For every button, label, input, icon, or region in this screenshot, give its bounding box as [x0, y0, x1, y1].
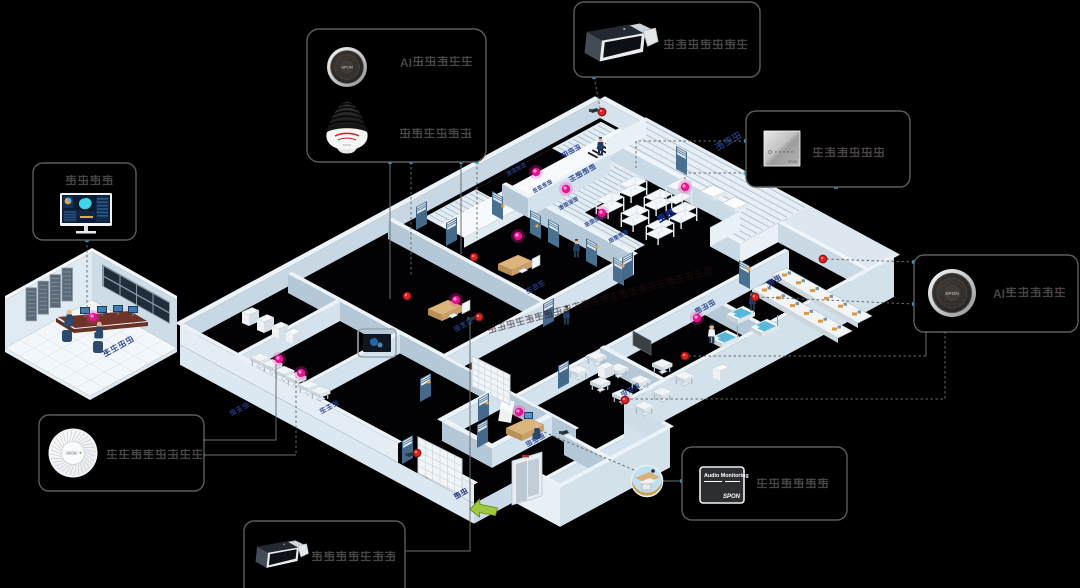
svg-text:Audio Monitoring: Audio Monitoring — [704, 473, 749, 479]
svg-text:SPON: SPON — [788, 160, 798, 164]
svg-text:SPON: SPON — [343, 143, 352, 147]
svg-text:AI: AI — [400, 56, 412, 70]
svg-text:AI: AI — [993, 287, 1005, 301]
svg-text:SPON: SPON — [67, 451, 77, 455]
svg-text:SPON: SPON — [341, 65, 352, 70]
svg-text:SPON: SPON — [945, 291, 959, 297]
svg-text:SPON: SPON — [723, 494, 741, 500]
